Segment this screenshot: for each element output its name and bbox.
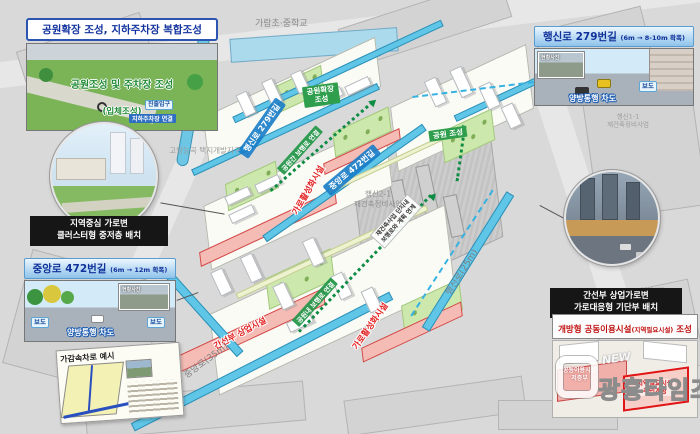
- school-label: 가람초·중학교: [255, 19, 308, 31]
- park-parking-tag: 지하주차장 연결: [129, 114, 176, 123]
- callout-community-title: 개방형 공동이용시설(지역필요시설) 조성: [552, 314, 698, 339]
- zone-center-label: 행신2-1 재건축정비사업: [354, 189, 402, 209]
- jungang-street-rendering: 현황사진 보도 보도 양방통행 차도: [24, 280, 176, 342]
- photo-tower: [602, 174, 618, 220]
- zone-right-label: 행신1-1 재건축정비사업: [607, 113, 649, 130]
- inset-caption: 현황사진: [122, 286, 140, 293]
- tree-icon: [27, 289, 43, 305]
- roadway-label: 양방통행 차도: [569, 93, 616, 104]
- inset-caption: 현황사진: [541, 54, 559, 61]
- car: [636, 252, 647, 258]
- master-plan-infographic: 가람초·중학교: [0, 0, 700, 434]
- park-rendering: 공원조성 및 주차장 조성 (입체조성) 진출입구 지하주차장 연결: [26, 43, 218, 131]
- photo-lowrise: [56, 158, 106, 180]
- accel-lane-photo: [125, 359, 152, 379]
- watermark-logo: [556, 356, 598, 398]
- community-title-main: 개방형 공동이용시설: [558, 325, 631, 335]
- watermark-name: 광흥타임즈: [598, 370, 700, 405]
- photo-tower: [110, 132, 126, 174]
- haengsin-title-sub: (6m → 8-10m 확폭): [621, 34, 685, 42]
- haengsin-inset-photo: 현황사진: [538, 52, 584, 78]
- photo-road: [566, 236, 658, 266]
- sidewalk-right-tag: 보도: [147, 317, 165, 328]
- callout-haengsin-title: 행신로 279번길 (6m → 8-10m 확폭): [534, 26, 694, 47]
- sidewalk-left-tag: 보도: [31, 317, 49, 328]
- callout-cluster-photo: [50, 122, 158, 230]
- callout-jungang-472: 중앙로 472번길 (6m → 12m 확폭) 현황사진 보도 보도 양방통행 …: [24, 258, 176, 342]
- district-left-label: 고양능곡 택지개발지구: [169, 146, 240, 156]
- haengsin-street-rendering: 현황사진 보도 양방통행 차도: [534, 48, 694, 106]
- car: [620, 244, 631, 250]
- callout-jungang-title: 중앙로 472번길 (6m → 12m 확폭): [24, 258, 176, 279]
- tree-icon: [43, 285, 61, 303]
- callout-cluster-label: 지역중심 가로변 클러스터형 중저층 배치: [30, 216, 168, 246]
- photo-podium: [566, 220, 658, 236]
- haengsin-title-text: 행신로 279번길: [543, 31, 617, 43]
- park-overlay-text: 공원조성 및 주차장 조성 (입체조성): [27, 66, 217, 118]
- car: [597, 79, 611, 88]
- tree-icon: [61, 291, 74, 304]
- callout-accel-lane-example: 가감속차로 예시: [56, 342, 185, 424]
- photo-tower: [580, 178, 595, 220]
- community-title-tail: 조성: [673, 325, 692, 335]
- callout-podium-photo: [564, 170, 660, 266]
- leader-line: [540, 205, 567, 220]
- jungang-title-sub: (6m → 12m 확폭): [110, 266, 167, 274]
- roadway-label: 양방통행 차도: [67, 327, 114, 338]
- photo-tower: [626, 182, 640, 220]
- building: [210, 267, 233, 296]
- park-entry-tag: 진출입구: [145, 100, 173, 110]
- sketch-building: [643, 341, 687, 364]
- callout-haengsin-279: 행신로 279번길 (6m → 8-10m 확폭) 현황사진 보도 양방통행 차…: [534, 26, 694, 106]
- building: [240, 253, 264, 284]
- park-overlay-line1: 공원조성 및 주차장 조성: [71, 80, 173, 91]
- jungang-title-text: 중앙로 472번길: [33, 263, 107, 275]
- callout-park-title: 공원확장 조성, 지하주차장 복합조성: [26, 18, 218, 41]
- accel-lane-text-lines: [127, 379, 179, 414]
- callout-park-expansion: 공원확장 조성, 지하주차장 복합조성 공원조성 및 주차장 조성 (입체조성)…: [26, 18, 218, 131]
- jungang-inset-photo: 현황사진: [119, 284, 169, 310]
- car: [91, 315, 104, 323]
- sidewalk-tag: 보도: [639, 81, 657, 92]
- photo-tower: [130, 138, 144, 174]
- community-title-paren: (지역필요시설): [631, 326, 673, 334]
